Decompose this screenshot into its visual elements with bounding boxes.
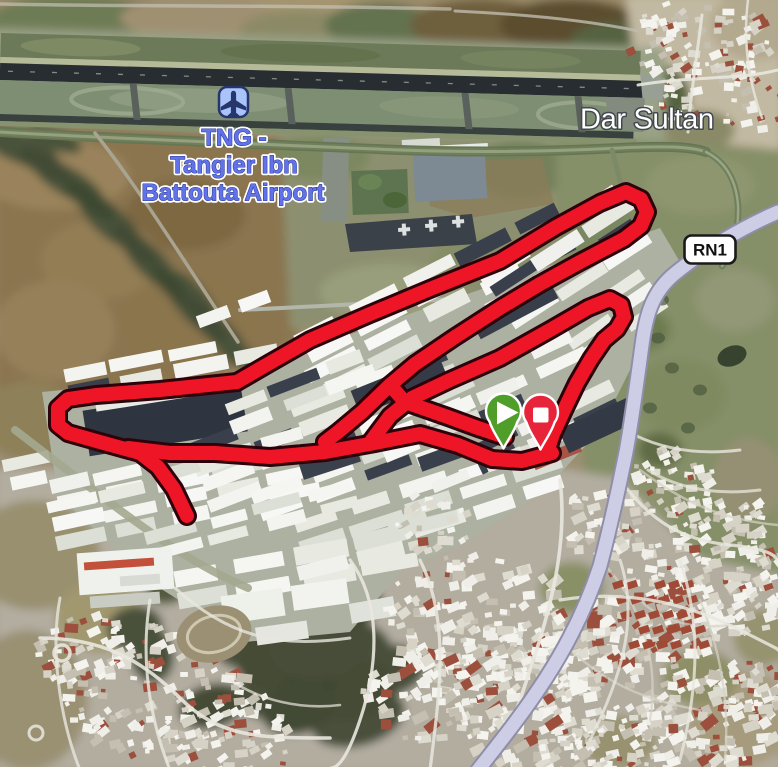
svg-text:Tangier Ibn: Tangier Ibn [170, 152, 298, 179]
svg-text:RN1: RN1 [693, 241, 727, 260]
svg-text:Battouta Airport: Battouta Airport [141, 180, 324, 207]
svg-text:Dar Sultan: Dar Sultan [580, 104, 714, 136]
svg-text:TNG -: TNG - [201, 125, 266, 152]
